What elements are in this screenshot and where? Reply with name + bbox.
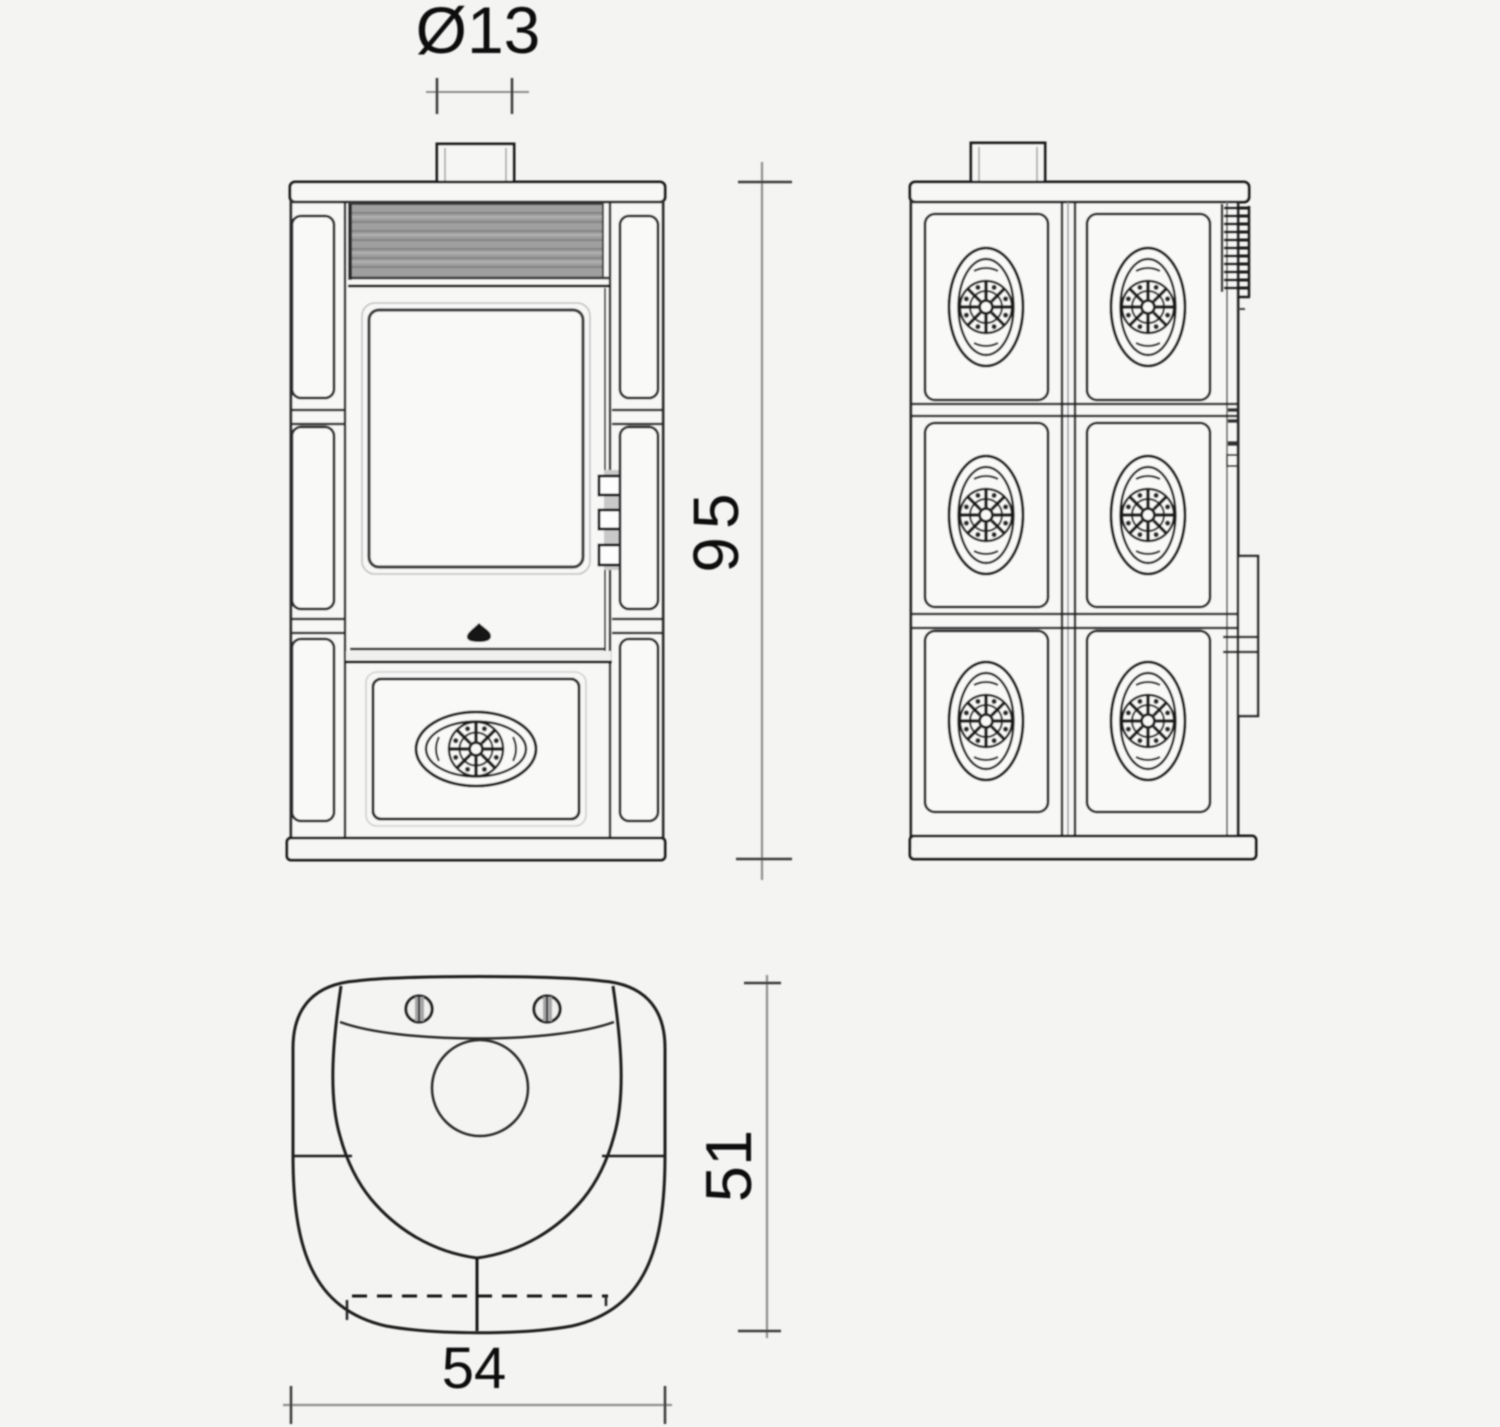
svg-text:51: 51 [692,1130,765,1202]
svg-text:54: 54 [442,1336,507,1401]
svg-text:Ø13: Ø13 [416,0,541,67]
svg-text:95: 95 [680,485,752,572]
